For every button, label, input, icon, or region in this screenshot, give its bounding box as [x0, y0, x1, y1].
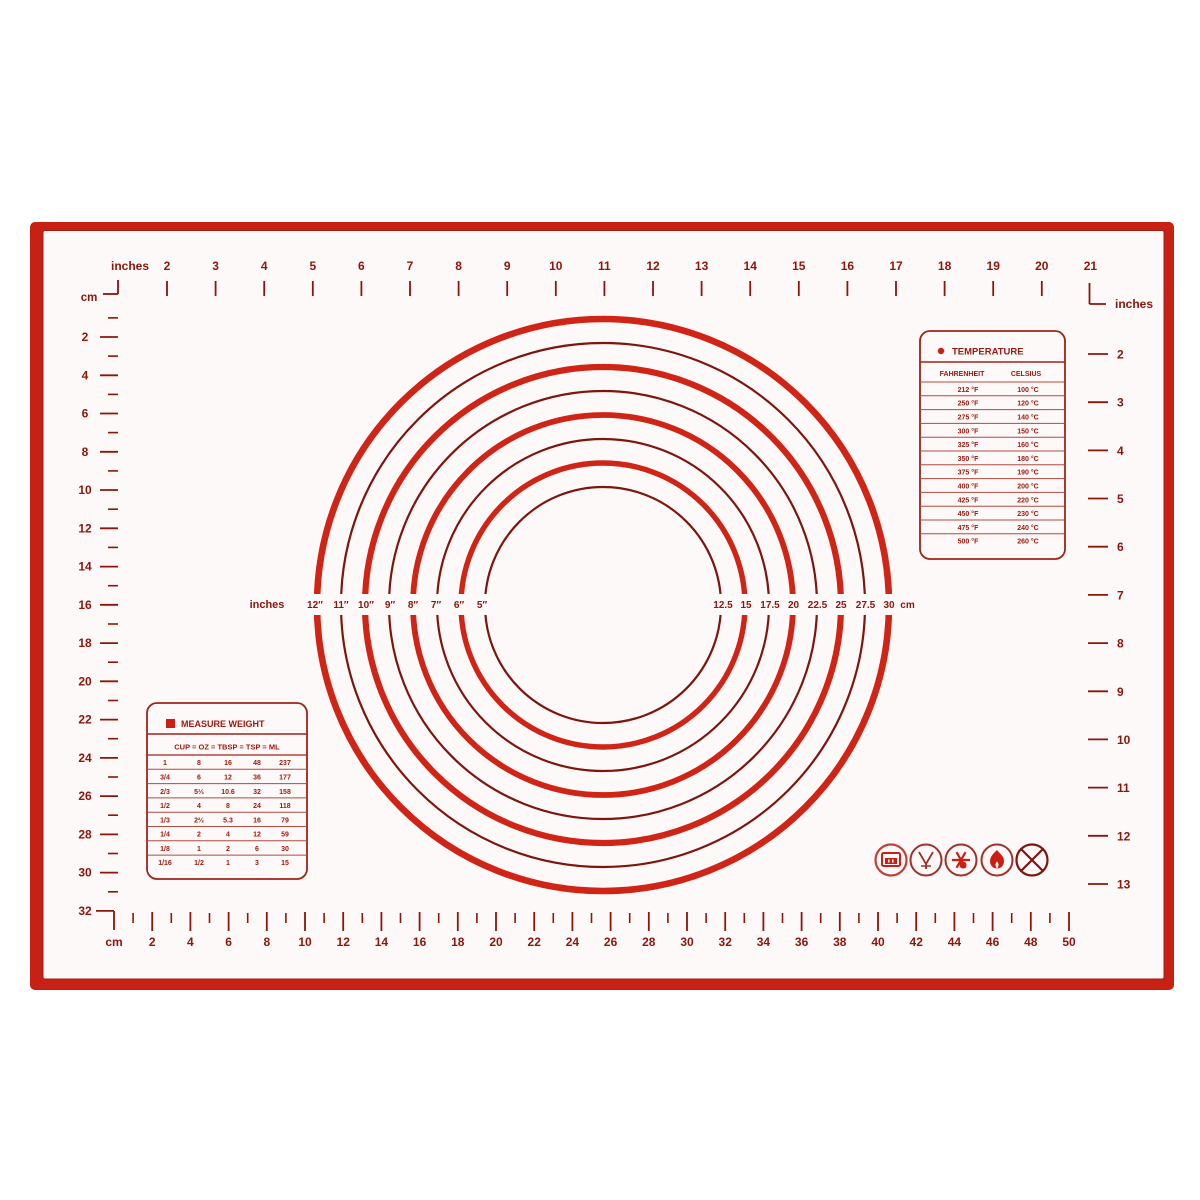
svg-text:8: 8: [455, 259, 462, 273]
svg-text:12: 12: [1117, 829, 1131, 843]
svg-text:5: 5: [1117, 492, 1124, 506]
svg-text:400 °F: 400 °F: [958, 483, 979, 491]
svg-text:8: 8: [263, 935, 270, 949]
svg-text:15: 15: [281, 860, 289, 867]
svg-text:260 °C: 260 °C: [1017, 538, 1038, 546]
svg-text:13: 13: [1117, 878, 1131, 892]
svg-text:32: 32: [253, 789, 261, 796]
svg-text:21: 21: [1084, 259, 1098, 273]
svg-text:20: 20: [78, 674, 92, 688]
svg-text:180 °C: 180 °C: [1017, 455, 1038, 463]
svg-text:FAHRENHEIT: FAHRENHEIT: [940, 371, 985, 378]
svg-text:27.5: 27.5: [856, 600, 876, 611]
svg-text:19: 19: [987, 259, 1001, 273]
svg-text:6: 6: [225, 935, 232, 949]
svg-text:30: 30: [281, 846, 289, 853]
svg-text:40: 40: [871, 935, 885, 949]
svg-text:24: 24: [78, 751, 92, 765]
svg-text:6″: 6″: [454, 600, 465, 611]
svg-text:16: 16: [224, 760, 232, 767]
svg-text:100 °C: 100 °C: [1017, 386, 1038, 394]
svg-text:inches: inches: [1115, 297, 1153, 311]
svg-text:42: 42: [910, 935, 924, 949]
svg-text:28: 28: [642, 935, 656, 949]
svg-text:3: 3: [212, 259, 219, 273]
svg-text:38: 38: [833, 935, 847, 949]
svg-text:1: 1: [163, 760, 167, 767]
svg-text:18: 18: [451, 935, 465, 949]
svg-text:4: 4: [226, 832, 230, 839]
svg-text:2: 2: [226, 846, 230, 853]
svg-text:14: 14: [375, 935, 389, 949]
svg-text:32: 32: [78, 904, 92, 918]
svg-text:12: 12: [78, 521, 92, 535]
svg-text:18: 18: [938, 259, 952, 273]
svg-text:12: 12: [224, 774, 232, 781]
svg-text:8: 8: [197, 760, 201, 767]
svg-text:1/2: 1/2: [160, 803, 170, 810]
svg-text:375 °F: 375 °F: [958, 469, 979, 477]
svg-text:250 °F: 250 °F: [958, 400, 979, 408]
svg-text:25: 25: [835, 600, 847, 611]
svg-text:16: 16: [78, 598, 92, 612]
svg-text:240 °C: 240 °C: [1017, 524, 1038, 532]
svg-text:150 °C: 150 °C: [1017, 427, 1038, 435]
svg-text:118: 118: [279, 803, 290, 810]
svg-text:177: 177: [279, 774, 291, 781]
svg-text:5.3: 5.3: [223, 817, 233, 824]
svg-text:2⅔: 2⅔: [194, 817, 204, 824]
svg-text:2: 2: [197, 832, 201, 839]
svg-text:7: 7: [407, 259, 414, 273]
svg-text:1/8: 1/8: [160, 846, 170, 853]
svg-text:1/3: 1/3: [160, 817, 170, 824]
svg-text:9: 9: [504, 259, 511, 273]
svg-text:6: 6: [255, 846, 259, 853]
svg-text:17: 17: [889, 259, 903, 273]
svg-text:2: 2: [149, 935, 156, 949]
svg-text:12.5: 12.5: [713, 600, 733, 611]
svg-text:10.6: 10.6: [221, 789, 235, 796]
svg-text:10: 10: [1117, 733, 1131, 747]
svg-text:5: 5: [309, 259, 316, 273]
svg-text:9: 9: [1117, 685, 1124, 699]
svg-text:10″: 10″: [358, 600, 374, 611]
svg-text:11″: 11″: [333, 600, 349, 611]
svg-text:4: 4: [1117, 444, 1124, 458]
svg-text:22.5: 22.5: [808, 600, 828, 611]
svg-text:4: 4: [187, 935, 194, 949]
svg-text:6: 6: [1117, 540, 1124, 554]
svg-text:200 °C: 200 °C: [1017, 483, 1038, 491]
svg-text:24: 24: [253, 803, 261, 810]
svg-text:inches: inches: [111, 259, 149, 273]
svg-text:48: 48: [253, 760, 261, 767]
svg-text:4: 4: [82, 368, 89, 382]
svg-text:20: 20: [788, 600, 800, 611]
svg-text:8: 8: [82, 445, 89, 459]
svg-text:CUP = OZ = TBSP = TSP = ML: CUP = OZ = TBSP = TSP = ML: [174, 743, 280, 752]
svg-text:1: 1: [197, 846, 201, 853]
svg-text:3/4: 3/4: [160, 774, 170, 781]
svg-text:30: 30: [78, 866, 92, 880]
svg-text:300 °F: 300 °F: [958, 427, 979, 435]
svg-text:44: 44: [948, 935, 962, 949]
svg-text:325 °F: 325 °F: [958, 441, 979, 449]
svg-text:20: 20: [489, 935, 503, 949]
svg-text:212 °F: 212 °F: [958, 386, 979, 394]
svg-text:5⅓: 5⅓: [194, 789, 204, 796]
svg-text:inches: inches: [250, 599, 285, 611]
svg-text:160 °C: 160 °C: [1017, 441, 1038, 449]
svg-text:6: 6: [197, 774, 201, 781]
svg-text:4: 4: [261, 259, 268, 273]
svg-text:50: 50: [1062, 935, 1076, 949]
svg-text:7: 7: [1117, 588, 1124, 602]
svg-text:15: 15: [740, 600, 752, 611]
svg-text:275 °F: 275 °F: [958, 414, 979, 422]
svg-text:cm: cm: [105, 935, 122, 949]
svg-text:79: 79: [281, 817, 289, 824]
svg-text:8: 8: [1117, 637, 1124, 651]
svg-text:190 °C: 190 °C: [1017, 469, 1038, 477]
svg-text:237: 237: [279, 760, 291, 767]
svg-text:220 °C: 220 °C: [1017, 496, 1038, 504]
svg-text:120 °C: 120 °C: [1017, 400, 1038, 408]
svg-text:12: 12: [253, 832, 261, 839]
svg-text:3: 3: [1117, 396, 1124, 410]
svg-text:2: 2: [1117, 348, 1124, 362]
svg-text:11: 11: [1117, 781, 1130, 795]
svg-text:24: 24: [566, 935, 580, 949]
svg-text:2: 2: [82, 330, 89, 344]
svg-text:500 °F: 500 °F: [958, 538, 979, 546]
svg-text:28: 28: [78, 827, 92, 841]
svg-text:14: 14: [78, 560, 92, 574]
svg-text:140 °C: 140 °C: [1017, 414, 1038, 422]
svg-text:7″: 7″: [431, 600, 442, 611]
svg-text:475 °F: 475 °F: [958, 524, 979, 532]
svg-text:16: 16: [841, 259, 855, 273]
svg-text:10: 10: [78, 483, 92, 497]
svg-text:1/16: 1/16: [158, 860, 172, 867]
svg-text:8″: 8″: [408, 600, 419, 611]
svg-text:32: 32: [719, 935, 733, 949]
svg-text:14: 14: [744, 259, 758, 273]
svg-text:15: 15: [792, 259, 806, 273]
svg-text:8: 8: [226, 803, 230, 810]
svg-text:10: 10: [298, 935, 312, 949]
svg-text:350 °F: 350 °F: [958, 455, 979, 463]
svg-text:22: 22: [528, 935, 542, 949]
svg-text:2/3: 2/3: [160, 789, 170, 796]
svg-text:12″: 12″: [307, 600, 323, 611]
svg-text:4: 4: [197, 803, 201, 810]
svg-text:36: 36: [795, 935, 809, 949]
svg-text:46: 46: [986, 935, 1000, 949]
svg-text:16: 16: [413, 935, 427, 949]
svg-text:18: 18: [78, 636, 92, 650]
svg-text:cm: cm: [81, 292, 98, 304]
svg-text:17.5: 17.5: [760, 600, 780, 611]
svg-text:34: 34: [757, 935, 771, 949]
svg-text:48: 48: [1024, 935, 1038, 949]
svg-text:1/2: 1/2: [194, 860, 204, 867]
svg-text:230 °C: 230 °C: [1017, 510, 1038, 518]
svg-text:MEASURE WEIGHT: MEASURE WEIGHT: [181, 719, 265, 729]
svg-text:cm: cm: [900, 600, 915, 611]
svg-text:12: 12: [646, 259, 660, 273]
svg-text:26: 26: [604, 935, 618, 949]
svg-text:6: 6: [358, 259, 365, 273]
svg-text:2: 2: [164, 259, 171, 273]
svg-text:CELSIUS: CELSIUS: [1011, 371, 1042, 378]
svg-text:20: 20: [1035, 259, 1049, 273]
svg-text:30: 30: [680, 935, 694, 949]
svg-text:13: 13: [695, 259, 709, 273]
svg-text:26: 26: [78, 789, 92, 803]
svg-text:425 °F: 425 °F: [958, 496, 979, 504]
svg-text:6: 6: [82, 407, 89, 421]
svg-text:10: 10: [549, 259, 563, 273]
svg-text:16: 16: [253, 817, 261, 824]
svg-text:22: 22: [78, 713, 92, 727]
svg-text:36: 36: [253, 774, 261, 781]
svg-text:1/4: 1/4: [160, 832, 170, 839]
svg-text:5″: 5″: [477, 600, 488, 611]
svg-text:12: 12: [337, 935, 351, 949]
svg-text:59: 59: [281, 832, 289, 839]
svg-text:158: 158: [279, 789, 291, 796]
svg-text:11: 11: [598, 259, 611, 273]
svg-text:30: 30: [883, 600, 895, 611]
svg-text:1: 1: [226, 860, 230, 867]
svg-text:TEMPERATURE: TEMPERATURE: [952, 347, 1024, 358]
svg-text:9″: 9″: [385, 600, 396, 611]
svg-text:450 °F: 450 °F: [958, 510, 979, 518]
svg-text:3: 3: [255, 860, 259, 867]
